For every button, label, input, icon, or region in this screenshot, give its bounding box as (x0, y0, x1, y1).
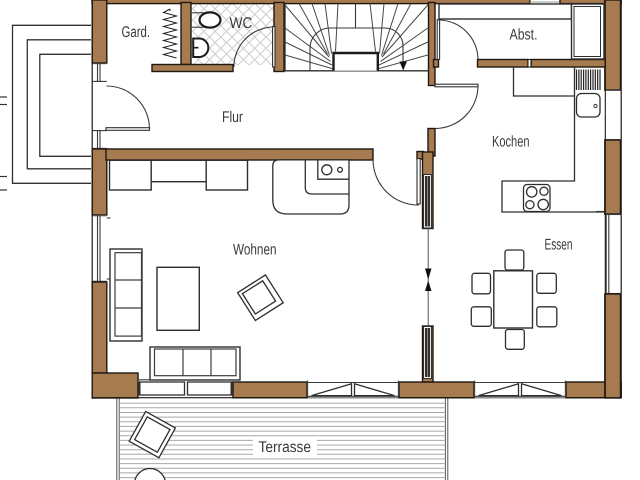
svg-text:WC: WC (230, 15, 253, 32)
svg-text:Kochen: Kochen (492, 134, 530, 151)
svg-text:Essen: Essen (545, 237, 573, 254)
svg-text:Abst.: Abst. (510, 27, 538, 44)
svg-text:Gard.: Gard. (122, 24, 151, 41)
svg-text:Wohnen: Wohnen (233, 242, 277, 259)
svg-text:Terrasse: Terrasse (259, 439, 312, 456)
svg-text:Flur: Flur (222, 109, 243, 126)
